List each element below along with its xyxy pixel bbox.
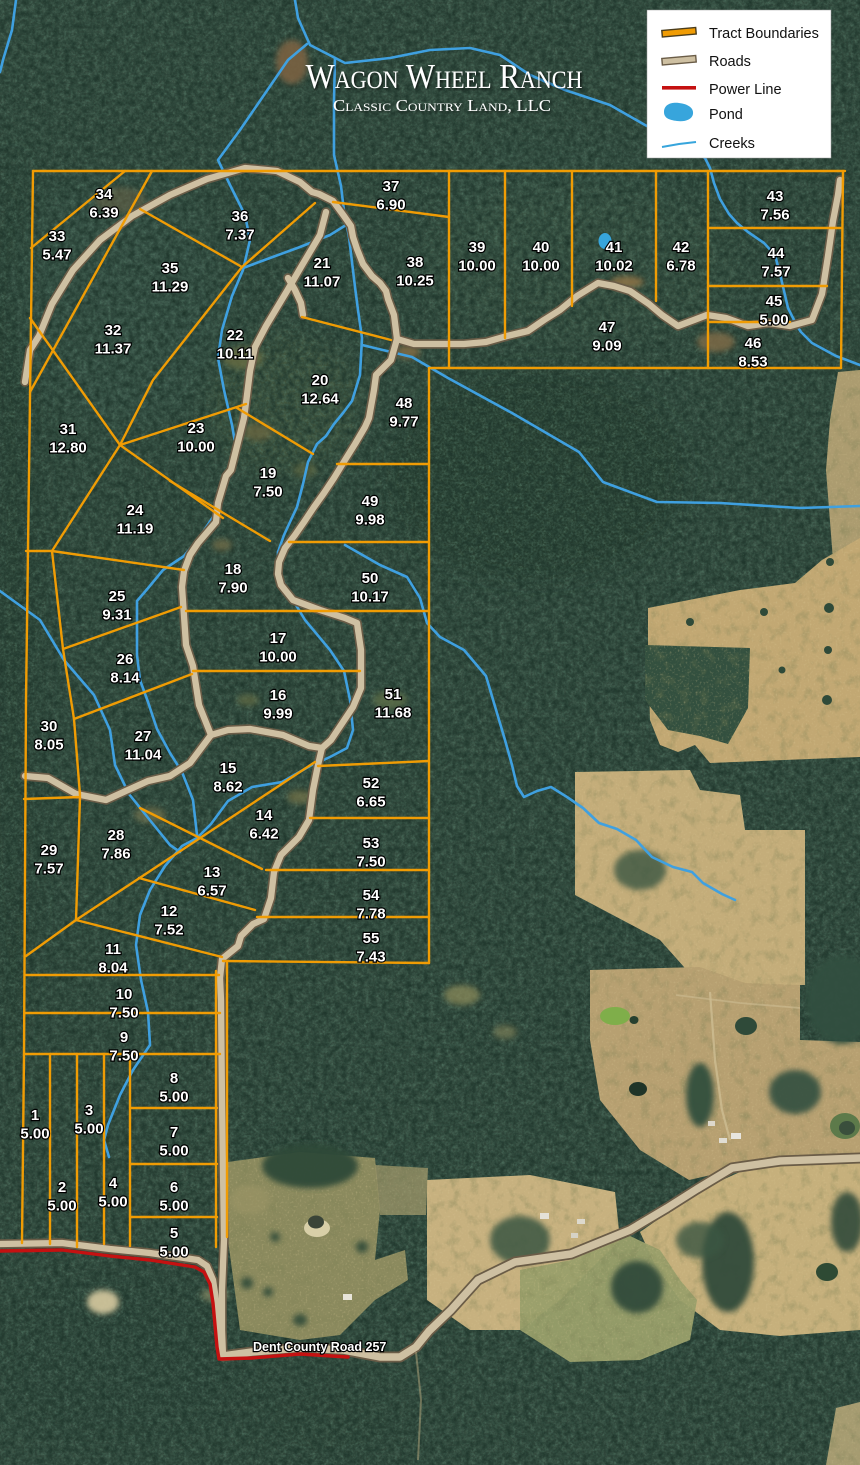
svg-text:49: 49 <box>362 493 379 510</box>
svg-text:21: 21 <box>314 255 331 272</box>
svg-text:7.90: 7.90 <box>218 580 247 597</box>
svg-text:Pond: Pond <box>709 107 743 123</box>
svg-text:Dent County Road 257: Dent County Road 257 <box>253 1340 386 1354</box>
svg-text:53: 53 <box>363 835 380 852</box>
svg-text:47: 47 <box>599 319 616 336</box>
svg-text:46: 46 <box>745 335 762 352</box>
svg-text:11.19: 11.19 <box>117 521 154 538</box>
svg-text:5.00: 5.00 <box>759 312 788 329</box>
svg-text:5.00: 5.00 <box>47 1198 76 1215</box>
svg-text:8.04: 8.04 <box>98 960 128 977</box>
svg-text:8: 8 <box>170 1070 178 1087</box>
svg-text:18: 18 <box>225 561 242 578</box>
svg-text:51: 51 <box>385 686 402 703</box>
svg-text:10.02: 10.02 <box>595 258 633 275</box>
svg-text:Wagon Wheel Ranch: Wagon Wheel Ranch <box>306 57 583 96</box>
svg-text:9.99: 9.99 <box>263 706 292 723</box>
svg-text:11.37: 11.37 <box>95 341 132 358</box>
svg-text:10.25: 10.25 <box>396 273 434 290</box>
svg-text:10.11: 10.11 <box>217 346 254 363</box>
svg-text:11.68: 11.68 <box>375 705 412 722</box>
svg-text:17: 17 <box>270 630 287 647</box>
svg-text:35: 35 <box>162 260 179 277</box>
svg-text:48: 48 <box>396 395 413 412</box>
svg-text:6.90: 6.90 <box>376 197 405 214</box>
svg-text:10.00: 10.00 <box>458 258 496 275</box>
svg-text:37: 37 <box>383 178 400 195</box>
svg-text:13: 13 <box>204 864 221 881</box>
svg-text:41: 41 <box>606 239 623 256</box>
svg-text:10.17: 10.17 <box>351 589 389 606</box>
svg-text:5: 5 <box>170 1225 178 1242</box>
svg-text:5.47: 5.47 <box>42 247 71 264</box>
svg-text:7.57: 7.57 <box>761 264 790 281</box>
svg-text:9.09: 9.09 <box>592 338 621 355</box>
svg-text:11.07: 11.07 <box>304 274 341 291</box>
svg-text:5.00: 5.00 <box>159 1089 188 1106</box>
svg-text:55: 55 <box>363 930 380 947</box>
svg-text:29: 29 <box>41 842 58 859</box>
svg-text:3: 3 <box>85 1102 93 1119</box>
svg-text:7.37: 7.37 <box>225 227 254 244</box>
svg-text:9.98: 9.98 <box>355 512 384 529</box>
svg-text:42: 42 <box>673 239 690 256</box>
svg-text:11.29: 11.29 <box>152 279 189 296</box>
svg-text:7.56: 7.56 <box>760 207 789 224</box>
svg-text:43: 43 <box>767 188 784 205</box>
svg-text:8.14: 8.14 <box>110 670 140 687</box>
svg-text:12.80: 12.80 <box>49 440 87 457</box>
svg-text:Creeks: Creeks <box>709 136 755 152</box>
svg-text:6.65: 6.65 <box>356 794 385 811</box>
svg-text:24: 24 <box>127 502 144 519</box>
svg-text:7.57: 7.57 <box>34 861 63 878</box>
svg-text:5.00: 5.00 <box>159 1198 188 1215</box>
svg-text:40: 40 <box>533 239 550 256</box>
svg-text:11: 11 <box>105 941 121 958</box>
svg-text:44: 44 <box>768 245 785 262</box>
svg-text:6.78: 6.78 <box>666 258 695 275</box>
svg-text:52: 52 <box>363 775 380 792</box>
svg-text:6: 6 <box>170 1179 178 1196</box>
svg-text:16: 16 <box>270 687 287 704</box>
svg-text:5.00: 5.00 <box>74 1121 103 1138</box>
svg-text:23: 23 <box>188 420 205 437</box>
svg-text:7.52: 7.52 <box>154 922 183 939</box>
svg-text:45: 45 <box>766 293 783 310</box>
svg-text:4: 4 <box>109 1175 118 1192</box>
svg-text:2: 2 <box>58 1179 66 1196</box>
svg-text:7.86: 7.86 <box>101 846 130 863</box>
svg-text:33: 33 <box>49 228 66 245</box>
svg-text:1: 1 <box>31 1107 39 1124</box>
svg-text:22: 22 <box>227 327 244 344</box>
svg-text:8.05: 8.05 <box>34 737 63 754</box>
svg-text:20: 20 <box>312 372 329 389</box>
svg-text:19: 19 <box>260 465 277 482</box>
svg-text:Classic Country Land, LLC: Classic Country Land, LLC <box>333 96 551 115</box>
svg-text:6.57: 6.57 <box>197 883 226 900</box>
svg-text:Roads: Roads <box>709 54 751 70</box>
svg-text:26: 26 <box>117 651 134 668</box>
svg-text:39: 39 <box>469 239 486 256</box>
svg-text:50: 50 <box>362 570 379 587</box>
svg-text:12.64: 12.64 <box>301 391 339 408</box>
svg-text:30: 30 <box>41 718 58 735</box>
svg-text:54: 54 <box>363 887 380 904</box>
svg-text:7.50: 7.50 <box>356 854 385 871</box>
svg-text:14: 14 <box>256 807 273 824</box>
svg-text:9.77: 9.77 <box>389 414 418 431</box>
svg-text:7.50: 7.50 <box>109 1048 138 1065</box>
svg-text:7.50: 7.50 <box>109 1005 138 1022</box>
svg-text:7.78: 7.78 <box>356 906 385 923</box>
svg-text:32: 32 <box>105 322 122 339</box>
svg-text:7.50: 7.50 <box>253 484 282 501</box>
svg-text:10.00: 10.00 <box>522 258 560 275</box>
svg-text:5.00: 5.00 <box>159 1244 188 1261</box>
svg-text:10.00: 10.00 <box>259 649 297 666</box>
svg-text:28: 28 <box>108 827 125 844</box>
svg-text:10.00: 10.00 <box>177 439 215 456</box>
svg-text:5.00: 5.00 <box>159 1143 188 1160</box>
svg-text:6.39: 6.39 <box>89 205 118 222</box>
svg-text:11.04: 11.04 <box>125 747 162 764</box>
svg-text:10: 10 <box>116 986 133 1003</box>
svg-text:25: 25 <box>109 588 126 605</box>
svg-text:8.62: 8.62 <box>213 779 242 796</box>
svg-text:27: 27 <box>135 728 152 745</box>
svg-text:Power Line: Power Line <box>709 82 782 98</box>
svg-text:12: 12 <box>161 903 178 920</box>
svg-text:36: 36 <box>232 208 249 225</box>
svg-text:15: 15 <box>220 760 237 777</box>
svg-text:5.00: 5.00 <box>98 1194 127 1211</box>
svg-text:9.31: 9.31 <box>102 607 131 624</box>
svg-text:Tract Boundaries: Tract Boundaries <box>709 26 819 42</box>
svg-text:5.00: 5.00 <box>20 1126 49 1143</box>
svg-text:7: 7 <box>170 1124 178 1141</box>
svg-text:7.43: 7.43 <box>356 949 385 966</box>
svg-text:31: 31 <box>60 421 77 438</box>
svg-text:6.42: 6.42 <box>249 826 278 843</box>
svg-text:38: 38 <box>407 254 424 271</box>
svg-text:34: 34 <box>96 186 113 203</box>
svg-text:9: 9 <box>120 1029 128 1046</box>
svg-text:8.53: 8.53 <box>738 354 767 371</box>
